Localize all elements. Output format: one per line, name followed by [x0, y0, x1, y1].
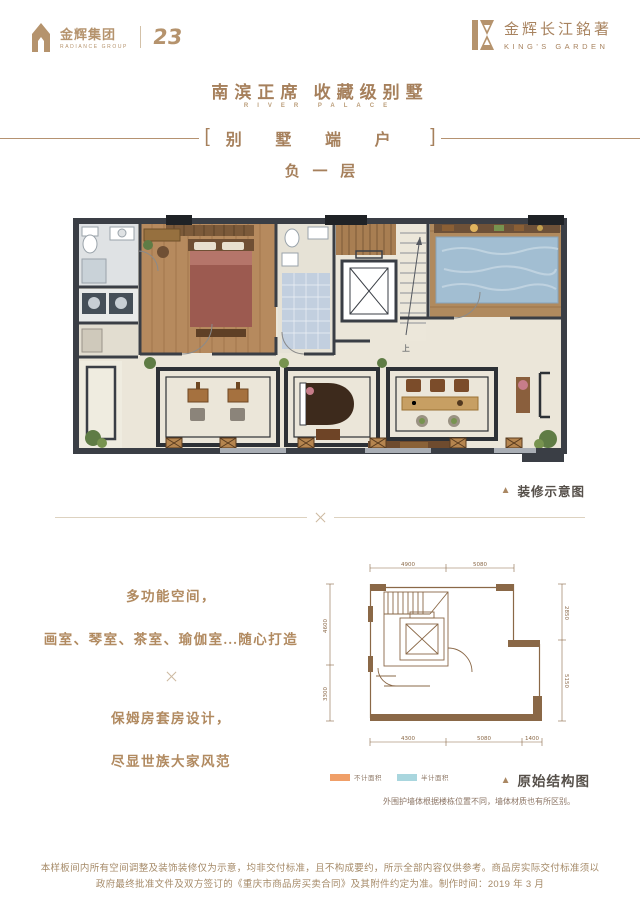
- kings-garden-name-en: KING'S GARDEN: [504, 42, 612, 51]
- main-title: 南滨正席 收藏级别墅: [0, 78, 640, 103]
- unit-banner-text: 别墅端户: [226, 126, 424, 150]
- dim-left-1: 4600: [323, 619, 329, 633]
- feature-line-1: 多功能空间，: [38, 585, 304, 605]
- dim-bottom-3: 1400: [525, 736, 539, 742]
- divider-line-right: [334, 517, 586, 518]
- decorated-plan-caption-text: 装修示意图: [517, 481, 585, 500]
- radiance-group-name-en: RADIANCE GROUP: [60, 44, 128, 50]
- logo-divider: [140, 26, 141, 48]
- divider-line-left: [55, 517, 307, 518]
- kings-garden-mark-icon: [471, 19, 495, 51]
- radiance-group-logo: 金辉集团 RADIANCE GROUP 23: [30, 22, 182, 52]
- x-ornament-icon: [166, 671, 177, 682]
- feature-line-4: 尽显世族大家风范: [38, 750, 304, 770]
- dim-bottom-2: 5080: [477, 736, 491, 742]
- decorated-plan-caption: ▲ 装修示意图: [501, 481, 585, 500]
- dim-left-2: 3300: [323, 687, 329, 701]
- legend-item-half-counted: 半计面积: [397, 772, 449, 782]
- disclaimer: 本样板间内所有空间调整及装饰装修仅为示意，均非交付标准，且不构成要约，所示全部内…: [30, 861, 610, 893]
- structure-plan-caption: ▲ 原始结构图: [501, 770, 590, 790]
- structure-plan-caption-text: 原始结构图: [518, 770, 591, 790]
- feature-line-3: 保姆房套房设计，: [38, 707, 304, 727]
- dim-right-1: 2850: [563, 606, 569, 620]
- legend-label: 半计面积: [421, 772, 449, 782]
- disclaimer-line-1: 本样板间内所有空间调整及装饰装修仅为示意，均非交付标准，且不构成要约，所示全部内…: [30, 861, 610, 877]
- triangle-up-icon: ▲: [501, 485, 512, 496]
- decorated-floor-plan: 上: [70, 211, 570, 464]
- poster-page: 金辉集团 RADIANCE GROUP 23 金辉长江銘著 KING'S GAR…: [0, 0, 640, 920]
- kings-garden-name: 金辉长江銘著: [504, 18, 612, 39]
- disclaimer-line-2: 政府最终批准文件及双方签订的《重庆市商品房买卖合同》及其附件约定为准。制作时间：…: [30, 877, 610, 893]
- radiance-house-icon: [30, 22, 52, 52]
- feature-copy: 多功能空间， 画室、琴室、茶室、瑜伽室...随心打造 保姆房套房设计， 尽显世族…: [38, 585, 304, 793]
- legend-item-non-counted: 不计面积: [330, 772, 382, 782]
- radiance-group-name: 金辉集团: [60, 24, 128, 43]
- main-title-en: RIVER PALACE: [0, 103, 640, 109]
- unit-banner: [ 别墅端户 ]: [0, 126, 640, 150]
- floor-label: 负一层: [0, 160, 640, 181]
- banner-line-right: [441, 138, 640, 139]
- banner-line-left: [0, 138, 199, 139]
- structure-plan: 4900 5080 4300 5080 1400 4600 3300 2850 …: [300, 556, 585, 771]
- triangle-up-icon: ▲: [501, 775, 512, 786]
- dim-top-1: 4900: [401, 562, 415, 568]
- legend-swatch-blue: [397, 774, 417, 781]
- feature-line-2: 画室、琴室、茶室、瑜伽室...随心打造: [38, 628, 304, 648]
- dim-top-2: 5080: [473, 562, 487, 568]
- stair-up-label: 上: [402, 344, 410, 353]
- anniversary-23: 23: [151, 25, 184, 49]
- x-ornament-icon: [315, 512, 326, 523]
- banner-bracket-left: [: [199, 126, 216, 148]
- legend-swatch-orange: [330, 774, 350, 781]
- kings-garden-logo: 金辉长江銘著 KING'S GARDEN: [471, 18, 612, 51]
- dim-bottom-1: 4300: [401, 736, 415, 742]
- dim-right-2: 5150: [563, 674, 569, 688]
- legend-label: 不计面积: [354, 772, 382, 782]
- section-divider: [55, 512, 585, 523]
- structure-plan-legend: 不计面积 半计面积: [330, 772, 449, 782]
- wall-material-note: 外围护墙体根据楼栋位置不同，墙体材质也有所区别。: [383, 796, 595, 807]
- banner-bracket-right: ]: [424, 126, 441, 148]
